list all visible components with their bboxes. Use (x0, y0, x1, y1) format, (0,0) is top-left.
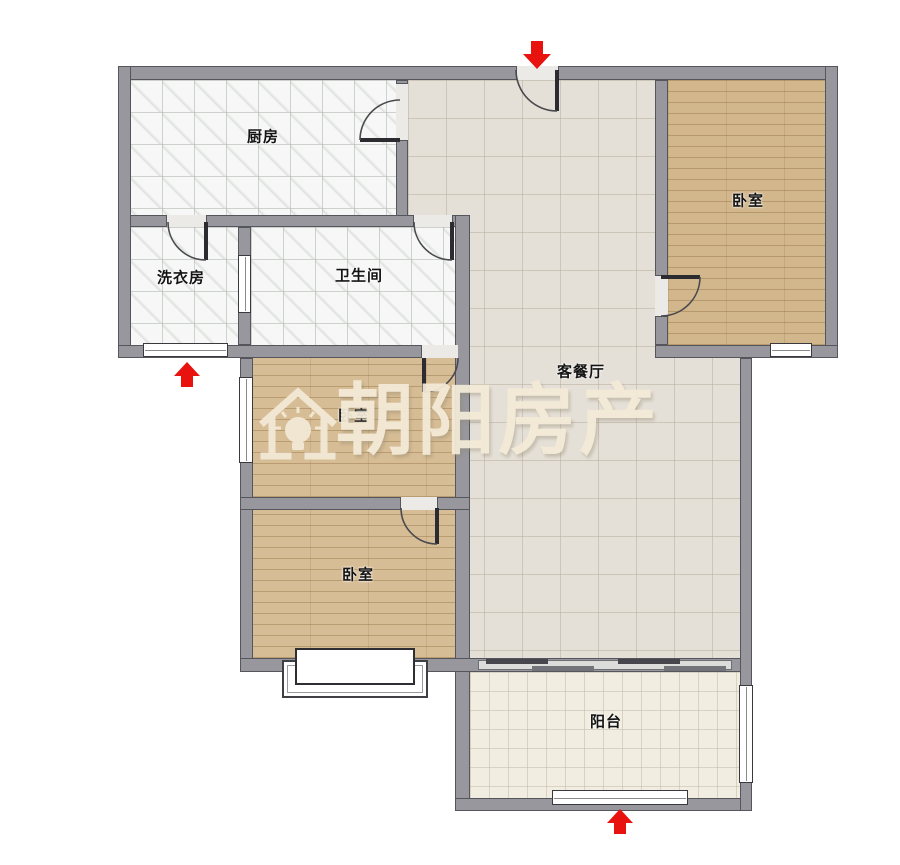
wall-segment (396, 140, 408, 227)
room-balcony-floor (470, 672, 740, 798)
balcony-sliding-door-panel (486, 659, 548, 664)
window-balcony-right (739, 685, 753, 783)
sliding-door-laundry-bathroom (238, 255, 251, 313)
room-label-bedroom-bl: 卧室 (342, 564, 374, 585)
wall-segment (130, 215, 167, 227)
entry-arrow-down-icon (523, 41, 551, 69)
room-label-laundry: 洗衣房 (157, 267, 205, 288)
bedroom-ml-door-opening (422, 345, 458, 358)
wall-segment (655, 80, 668, 276)
wall-segment (455, 215, 470, 811)
floor-plan: 厨房 洗衣房 卫生间 卧室 客餐厅 卧室 卧室 阳台 朝阳房产 (0, 0, 900, 865)
room-label-balcony: 阳台 (590, 711, 622, 732)
room-label-bedroom-ml: 卧室 (338, 405, 370, 426)
room-label-living-dining: 客餐厅 (557, 361, 605, 382)
wall-segment (240, 497, 401, 510)
bottom-arrow-up-icon (607, 809, 633, 834)
laundry-door-opening (167, 215, 206, 227)
room-label-kitchen: 厨房 (247, 126, 279, 147)
window-bedroom-ml-left (239, 377, 253, 463)
room-kitchen-floor (130, 80, 396, 215)
balcony-sliding-door-panel (532, 666, 594, 671)
entry-door-opening (517, 66, 558, 80)
bathroom-door-opening (414, 215, 452, 227)
room-bedroom-middle-left-floor (252, 358, 455, 497)
left-arrow-up-icon (174, 362, 200, 387)
balcony-sliding-door-panel (618, 659, 680, 664)
balcony-sliding-door-panel (664, 666, 726, 671)
wall-segment (206, 215, 414, 227)
room-bedroom-top-right-floor (668, 80, 825, 345)
wall-segment (437, 497, 470, 510)
room-label-bedroom-tr: 卧室 (732, 190, 764, 211)
bedroom-tr-door-opening (655, 276, 668, 316)
window-laundry (143, 343, 228, 357)
room-label-bathroom: 卫生间 (335, 265, 383, 286)
bedroom-bl-door-opening (401, 497, 437, 510)
wall-segment (118, 66, 131, 358)
wall-segment (825, 66, 838, 358)
room-bathroom-floor (251, 227, 455, 345)
wall-segment (655, 316, 668, 345)
kitchen-door-opening (396, 84, 408, 140)
window-balcony-bottom (552, 790, 688, 805)
wall-segment (118, 66, 517, 80)
wall-segment (558, 66, 838, 80)
window-bedroom-tr (770, 343, 812, 357)
bay-window (295, 648, 415, 685)
